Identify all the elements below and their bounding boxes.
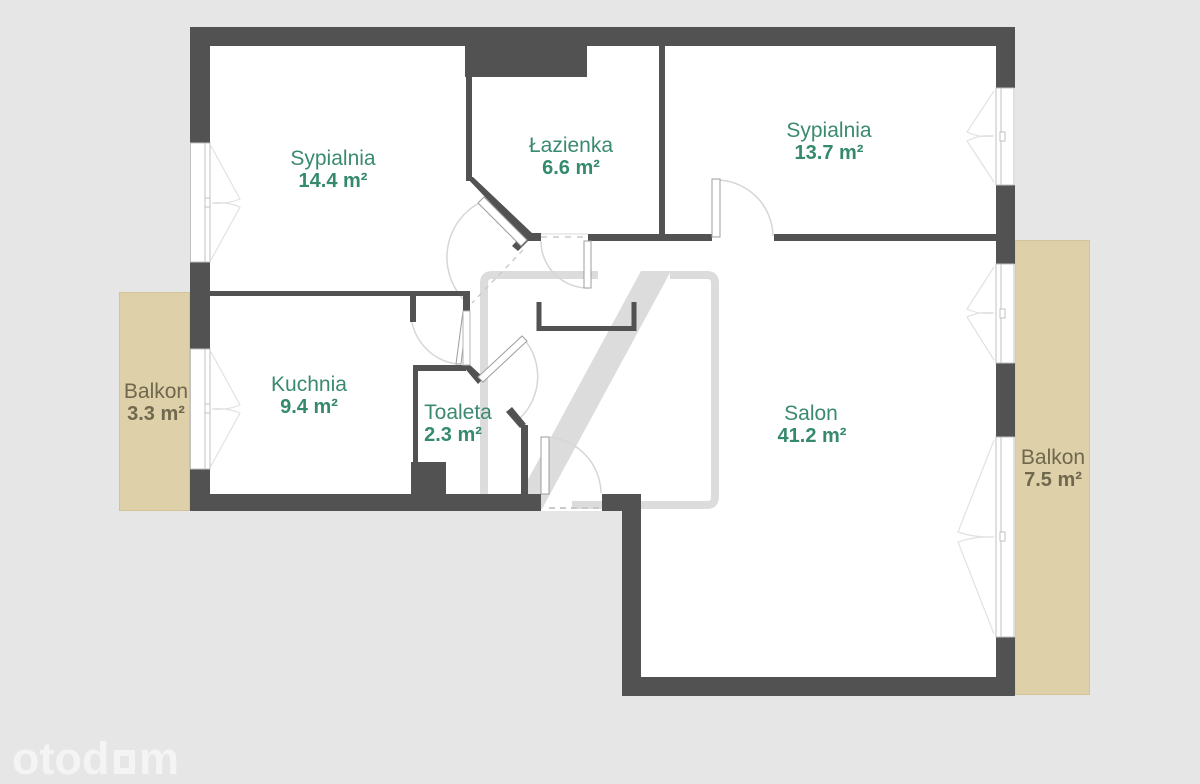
svg-text:Balkon: Balkon bbox=[124, 380, 188, 403]
svg-text:41.2 m²: 41.2 m² bbox=[778, 425, 847, 447]
svg-text:Kuchnia: Kuchnia bbox=[271, 373, 347, 396]
svg-text:7.5 m²: 7.5 m² bbox=[1024, 469, 1082, 491]
svg-text:Balkon: Balkon bbox=[1021, 446, 1085, 469]
svg-text:Sypialnia: Sypialnia bbox=[290, 147, 376, 170]
svg-text:otod: otod bbox=[12, 733, 109, 784]
svg-text:13.7 m²: 13.7 m² bbox=[795, 142, 864, 164]
svg-text:m: m bbox=[139, 733, 179, 784]
svg-text:Sypialnia: Sypialnia bbox=[786, 119, 872, 142]
svg-text:9.4 m²: 9.4 m² bbox=[280, 396, 338, 418]
svg-text:14.4 m²: 14.4 m² bbox=[299, 170, 368, 192]
svg-text:Łazienka: Łazienka bbox=[529, 134, 613, 157]
svg-text:3.3 m²: 3.3 m² bbox=[127, 403, 185, 425]
svg-text:Salon: Salon bbox=[784, 402, 838, 425]
svg-text:Toaleta: Toaleta bbox=[424, 401, 492, 424]
svg-text:6.6 m²: 6.6 m² bbox=[542, 157, 600, 179]
svg-text:2.3 m²: 2.3 m² bbox=[424, 424, 482, 446]
